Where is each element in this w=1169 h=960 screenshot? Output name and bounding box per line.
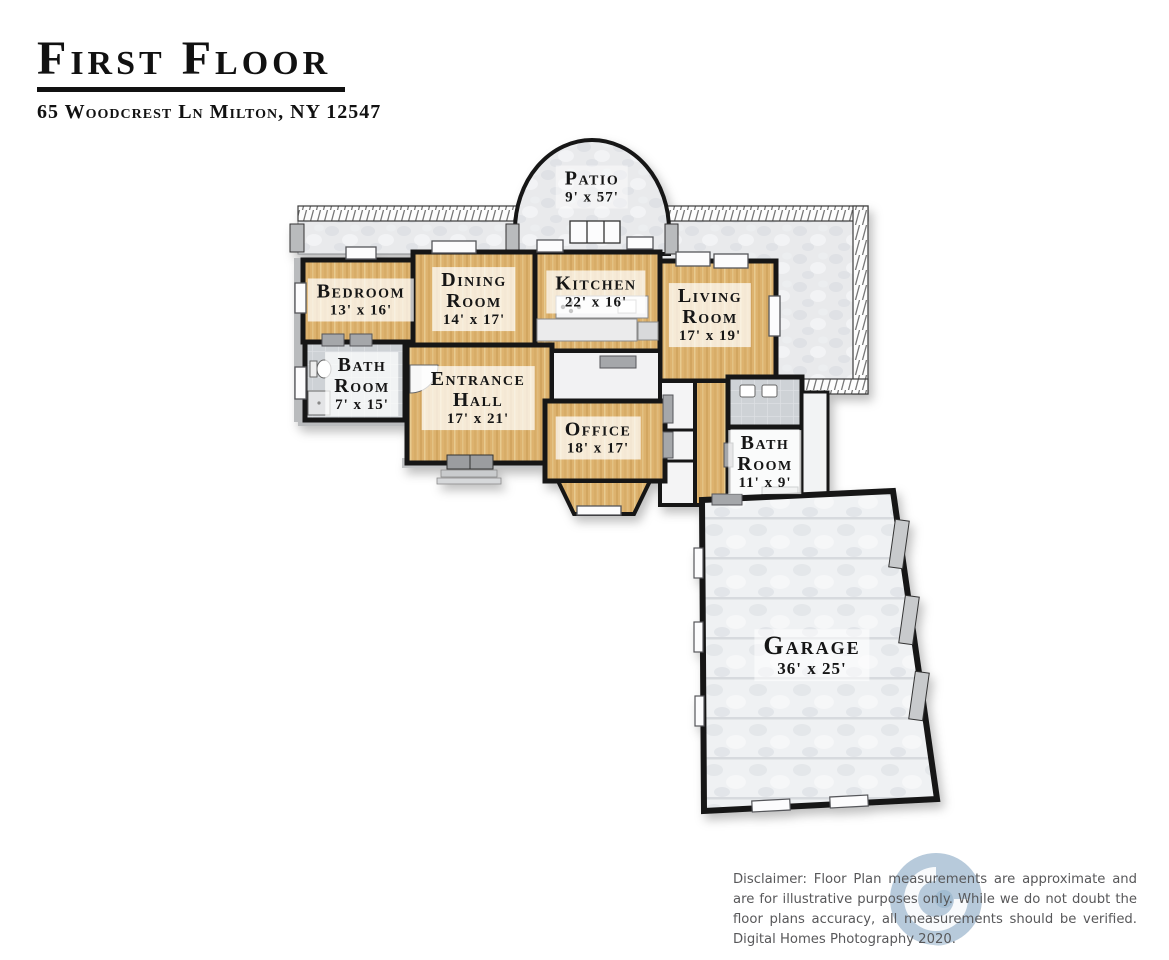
room-dims: 9' x 57' — [565, 189, 619, 206]
room-label-garage: Garage 36' x 25' — [754, 629, 869, 681]
room-dims: 17' x 19' — [678, 328, 742, 345]
room-dims: 11' x 9' — [737, 475, 792, 492]
plan-body — [290, 140, 937, 812]
room-dims: 7' x 15' — [334, 397, 389, 414]
room-name: Bath Room — [334, 355, 389, 397]
room-name: Entrance Hall — [431, 369, 526, 411]
floor-plan-svg — [0, 0, 1169, 960]
disclaimer-text: Disclaimer: Floor Plan measurements are … — [733, 870, 1137, 950]
room-name: Garage — [763, 632, 860, 659]
room-name: Kitchen — [555, 273, 636, 294]
room-name: Dining Room — [441, 270, 506, 312]
room-dims: 22' x 16' — [555, 294, 636, 311]
room-name: Living Room — [678, 286, 742, 328]
room-label-bedroom: Bedroom 13' x 16' — [308, 278, 414, 321]
room-label-patio: Patio 9' x 57' — [556, 165, 628, 208]
floor-plan-page: First Floor 65 Woodcrest Ln Milton, NY 1… — [0, 0, 1169, 960]
room-label-office: Office 18' x 17' — [556, 416, 641, 459]
room-dims: 13' x 16' — [317, 302, 405, 319]
room-dims: 36' x 25' — [763, 659, 860, 679]
room-label-entrance: Entrance Hall 17' x 21' — [422, 366, 535, 430]
room-name: Bedroom — [317, 281, 405, 302]
room-dims: 17' x 21' — [431, 411, 526, 428]
room-label-dining: Dining Room 14' x 17' — [432, 267, 515, 331]
walkway-floor — [802, 392, 828, 505]
room-dims: 18' x 17' — [565, 440, 632, 457]
room-label-kitchen: Kitchen 22' x 16' — [546, 270, 645, 313]
room-name: Patio — [565, 168, 619, 189]
room-name: Bath Room — [737, 433, 792, 475]
room-dims: 14' x 17' — [441, 312, 506, 329]
room-label-living: Living Room 17' x 19' — [669, 283, 751, 347]
room-label-bath2: Bath Room 11' x 9' — [728, 430, 801, 494]
room-label-bath1: Bath Room 7' x 15' — [325, 352, 398, 416]
room-name: Office — [565, 419, 632, 440]
corridor-floor — [695, 381, 728, 505]
